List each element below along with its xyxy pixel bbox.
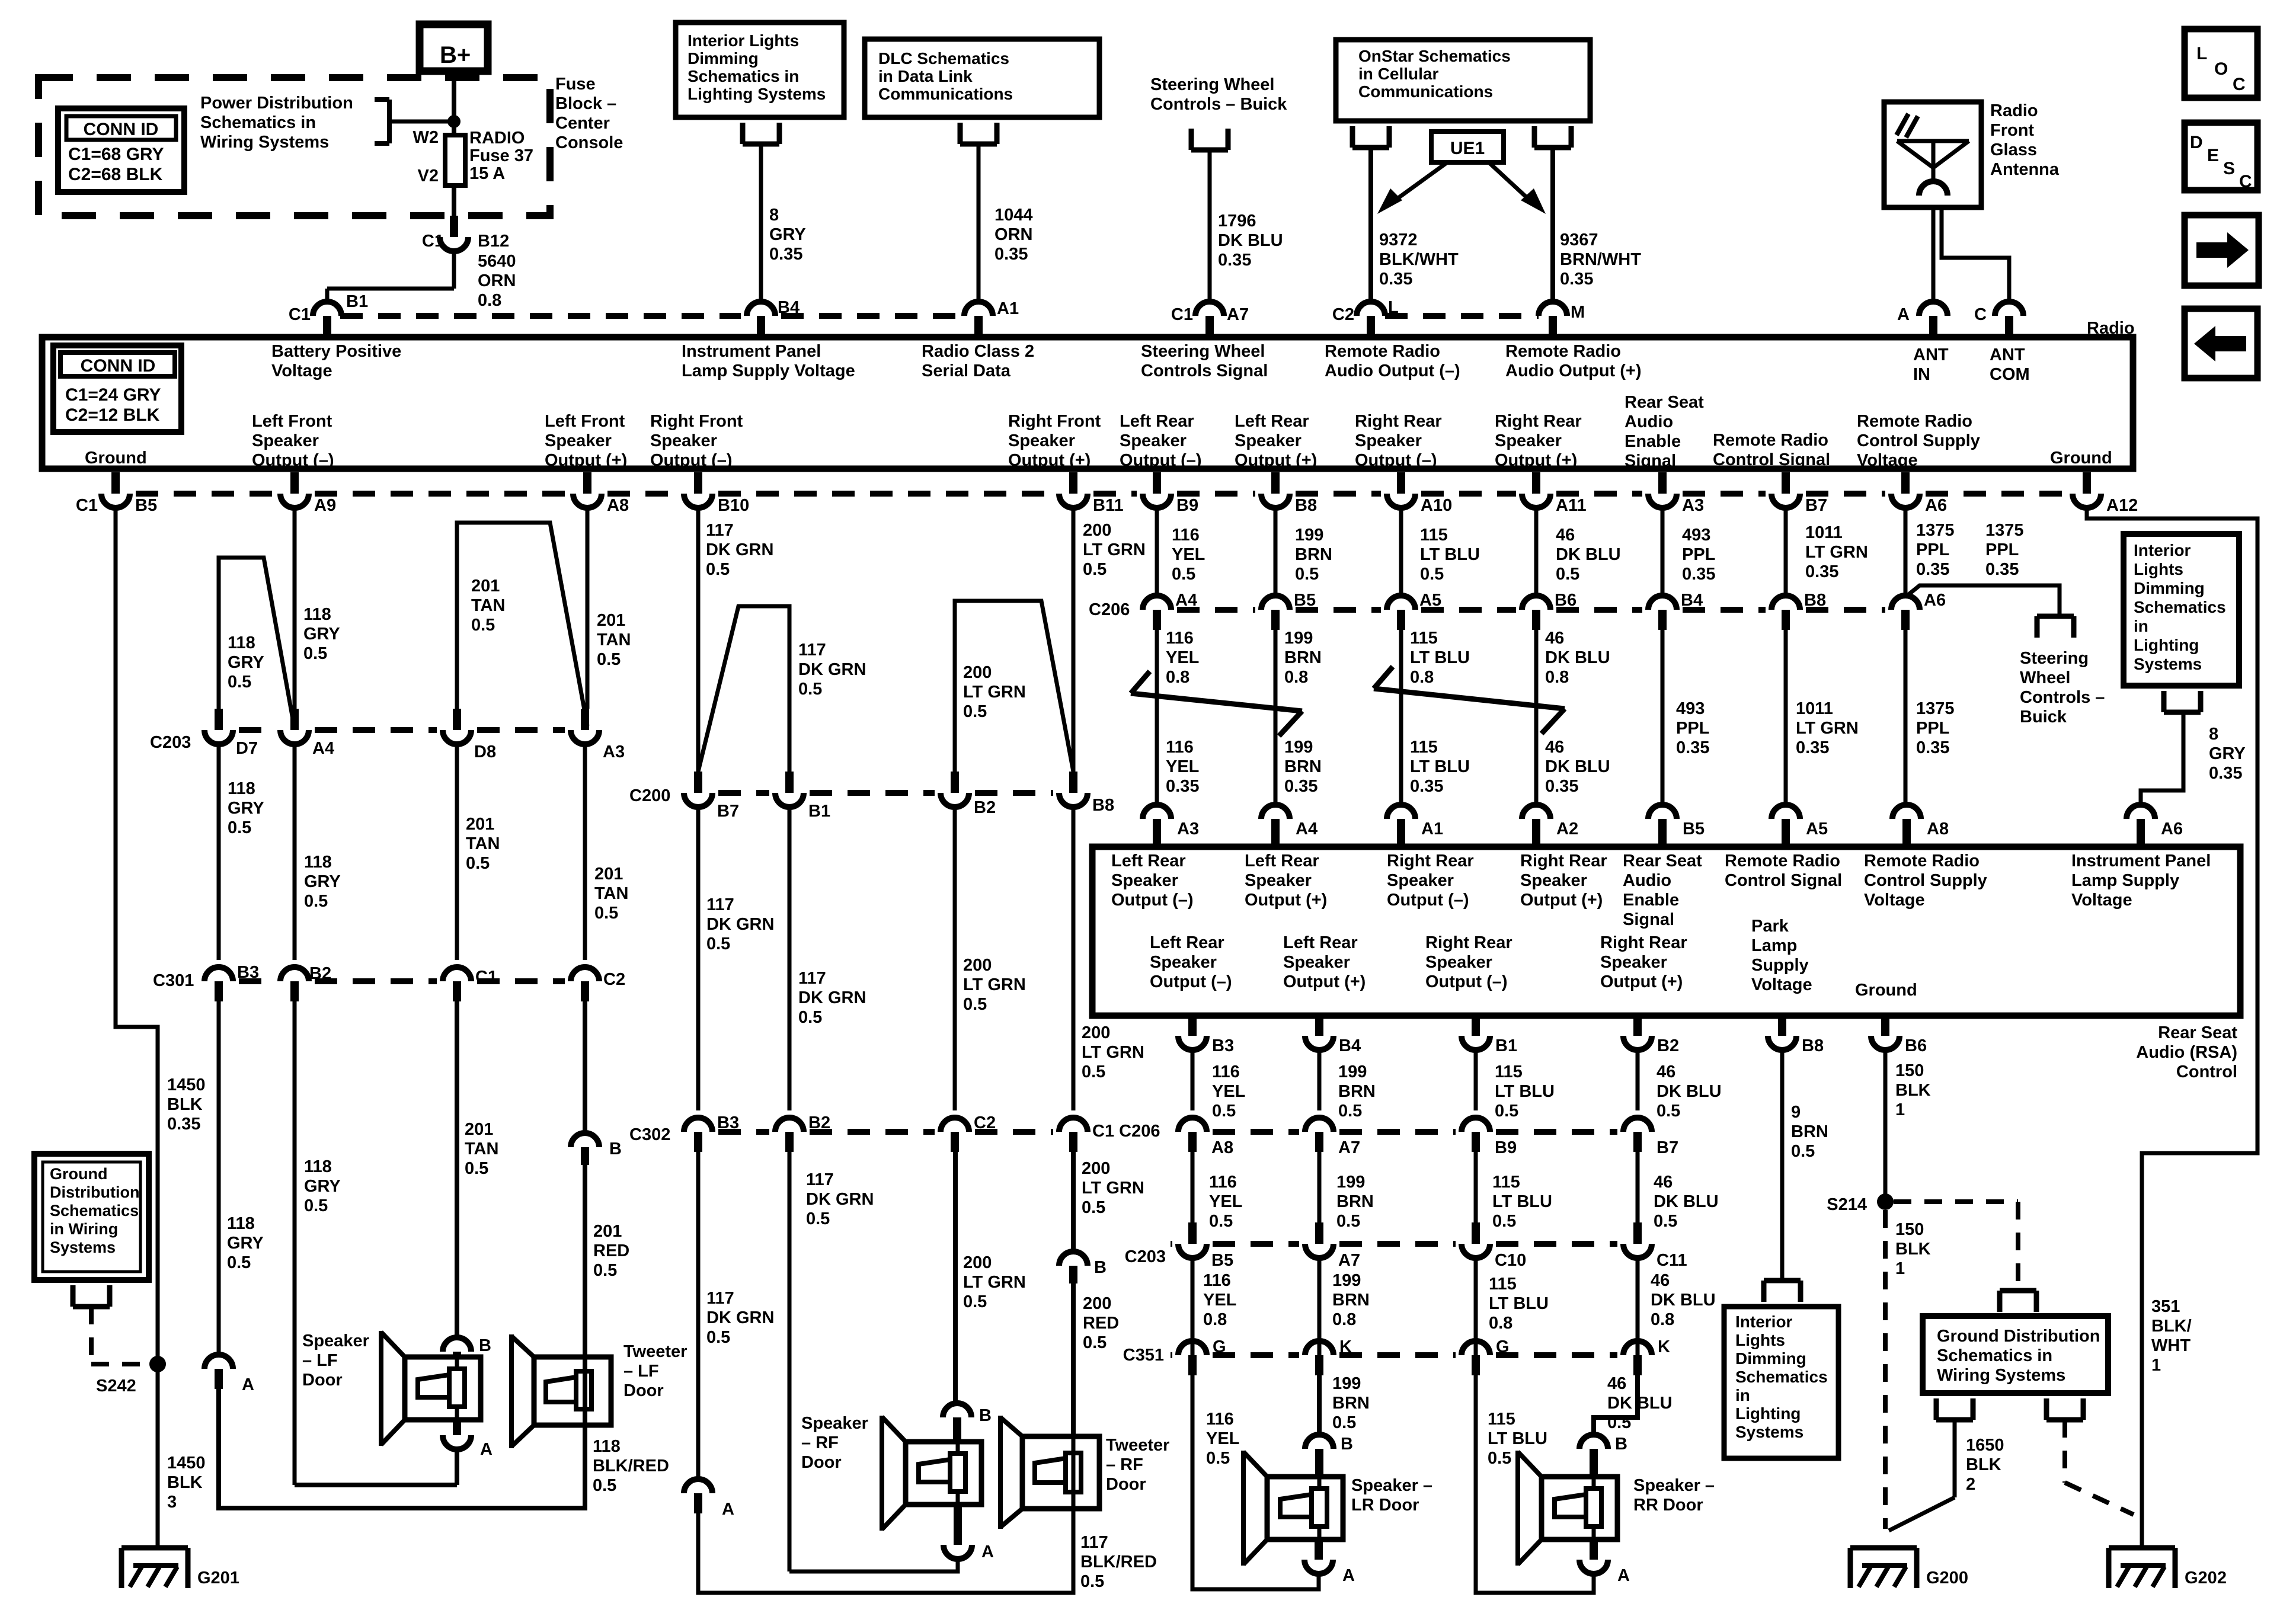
svg-text:1044: 1044 [994, 206, 1033, 225]
svg-text:PPL: PPL [1676, 719, 1709, 738]
svg-text:0.5: 0.5 [594, 904, 618, 923]
svg-text:BRN: BRN [1791, 1122, 1828, 1141]
svg-text:0.35: 0.35 [1796, 738, 1829, 757]
svg-text:B4: B4 [1339, 1036, 1361, 1055]
svg-text:0.5: 0.5 [304, 1196, 328, 1215]
svg-text:ANT: ANT [1990, 345, 2025, 364]
svg-text:RR Door: RR Door [1633, 1496, 1703, 1515]
svg-text:0.35: 0.35 [1916, 738, 1949, 757]
svg-text:– LF: – LF [302, 1351, 338, 1370]
svg-text:0.35: 0.35 [769, 245, 802, 264]
svg-text:C203: C203 [1125, 1247, 1166, 1266]
svg-text:LT GRN: LT GRN [1082, 1179, 1144, 1198]
svg-text:B6: B6 [1555, 591, 1576, 610]
svg-text:C: C [2239, 172, 2252, 191]
svg-text:A: A [480, 1440, 493, 1459]
svg-text:DK BLU: DK BLU [1545, 648, 1610, 667]
svg-text:Block –: Block – [555, 94, 616, 113]
svg-text:BLK: BLK [167, 1095, 203, 1114]
svg-text:B5: B5 [1211, 1251, 1233, 1270]
svg-text:BLK/RED: BLK/RED [1080, 1553, 1157, 1571]
svg-text:Speaker: Speaker [801, 1414, 868, 1433]
svg-text:0.35: 0.35 [1284, 777, 1318, 796]
svg-text:0.5: 0.5 [1332, 1413, 1356, 1432]
svg-text:Voltage: Voltage [1864, 891, 1925, 910]
svg-text:Tweeter: Tweeter [1106, 1436, 1169, 1455]
svg-text:Output (–): Output (–) [1355, 451, 1437, 470]
svg-text:B1: B1 [1495, 1036, 1517, 1055]
svg-text:Buick: Buick [2020, 708, 2067, 726]
svg-text:46: 46 [1545, 738, 1564, 757]
svg-text:117: 117 [706, 895, 734, 914]
svg-text:Tweeter: Tweeter [623, 1342, 687, 1361]
svg-text:C1: C1 [1171, 305, 1193, 324]
svg-text:117: 117 [1080, 1533, 1108, 1552]
svg-text:Right Rear: Right Rear [1387, 852, 1474, 870]
svg-text:201: 201 [465, 1120, 493, 1139]
svg-text:46: 46 [1657, 1062, 1675, 1081]
svg-text:0.8: 0.8 [478, 291, 501, 310]
svg-text:Instrument Panel: Instrument Panel [682, 342, 821, 361]
svg-text:YEL: YEL [1166, 757, 1199, 776]
svg-text:C2=68 BLK: C2=68 BLK [68, 165, 163, 184]
svg-text:B10: B10 [718, 496, 749, 515]
svg-text:B: B [1615, 1435, 1627, 1454]
svg-text:DK BLU: DK BLU [1651, 1291, 1716, 1310]
svg-text:0.5: 0.5 [963, 995, 987, 1014]
svg-text:Speaker: Speaker [1283, 953, 1350, 972]
svg-text:Speaker: Speaker [302, 1331, 369, 1350]
svg-text:117: 117 [798, 641, 826, 660]
svg-text:Door: Door [801, 1453, 842, 1472]
svg-text:IN: IN [1913, 365, 1930, 384]
svg-text:C1: C1 [76, 496, 98, 515]
svg-text:Door: Door [302, 1371, 343, 1390]
svg-text:B3: B3 [237, 963, 259, 982]
svg-text:Door: Door [623, 1381, 664, 1400]
svg-text:A3: A3 [1682, 496, 1704, 515]
svg-text:WHT: WHT [2151, 1336, 2191, 1355]
svg-text:0.5: 0.5 [593, 1261, 617, 1280]
svg-text:Center: Center [555, 114, 610, 133]
svg-text:Remote Radio: Remote Radio [1725, 852, 1840, 870]
svg-text:0.5: 0.5 [1206, 1449, 1230, 1468]
svg-text:0.5: 0.5 [1791, 1142, 1815, 1161]
svg-text:A8: A8 [1927, 820, 1949, 838]
svg-text:B: B [1341, 1435, 1353, 1454]
svg-text:A4: A4 [312, 739, 334, 758]
svg-text:B: B [479, 1336, 491, 1355]
svg-text:0.5: 0.5 [1083, 1333, 1107, 1352]
svg-text:Lamp Supply Voltage: Lamp Supply Voltage [682, 361, 855, 380]
svg-text:0.35: 0.35 [1410, 777, 1443, 796]
svg-text:0.35: 0.35 [1218, 251, 1251, 270]
svg-text:201: 201 [597, 611, 625, 630]
svg-text:46: 46 [1556, 526, 1575, 545]
svg-text:0.35: 0.35 [1379, 270, 1412, 289]
svg-text:0.35: 0.35 [167, 1115, 200, 1134]
svg-text:Speaker: Speaker [1235, 431, 1302, 450]
svg-text:YEL: YEL [1206, 1429, 1239, 1448]
svg-text:118: 118 [227, 1214, 255, 1233]
svg-text:Output (+): Output (+) [1235, 451, 1317, 470]
svg-text:0.5: 0.5 [798, 1008, 822, 1027]
svg-text:Supply: Supply [1751, 956, 1809, 975]
svg-text:A: A [1342, 1566, 1355, 1585]
svg-text:0.5: 0.5 [706, 934, 730, 953]
svg-text:B8: B8 [1802, 1036, 1824, 1055]
svg-text:BRN: BRN [1295, 545, 1332, 564]
svg-text:0.5: 0.5 [597, 650, 621, 669]
svg-text:Audio Output (–): Audio Output (–) [1325, 361, 1460, 380]
svg-text:GRY: GRY [228, 799, 264, 818]
svg-text:DK GRN: DK GRN [798, 988, 866, 1007]
svg-text:Voltage: Voltage [1857, 451, 1918, 470]
svg-text:LT GRN: LT GRN [1805, 543, 1868, 562]
svg-text:Audio: Audio [1623, 871, 1671, 890]
svg-text:GRY: GRY [303, 625, 340, 644]
svg-text:Ground: Ground [1855, 981, 1917, 1000]
svg-text:LT BLU: LT BLU [1488, 1429, 1547, 1448]
svg-text:1011: 1011 [1805, 523, 1843, 542]
svg-text:A: A [1617, 1566, 1630, 1585]
svg-text:9367: 9367 [1560, 231, 1598, 249]
svg-text:Speaker: Speaker [1600, 953, 1667, 972]
svg-text:Remote Radio: Remote Radio [1713, 431, 1828, 450]
svg-text:B9: B9 [1495, 1138, 1517, 1157]
svg-text:BLK: BLK [167, 1473, 203, 1492]
svg-text:B2: B2 [309, 964, 331, 983]
svg-text:Output (+): Output (+) [1008, 451, 1091, 470]
svg-text:Right Rear: Right Rear [1495, 412, 1582, 431]
svg-text:Left Rear: Left Rear [1235, 412, 1309, 431]
svg-text:116: 116 [1212, 1062, 1240, 1081]
svg-text:0.5: 0.5 [1657, 1102, 1680, 1121]
svg-text:Speaker: Speaker [252, 431, 319, 450]
svg-text:115: 115 [1420, 526, 1448, 545]
svg-text:116: 116 [1206, 1410, 1234, 1429]
svg-text:0.5: 0.5 [1080, 1572, 1104, 1591]
svg-text:in Wiring: in Wiring [50, 1220, 118, 1238]
svg-text:OnStar Schematics: OnStar Schematics [1358, 47, 1511, 65]
svg-text:C2=12 BLK: C2=12 BLK [65, 405, 160, 425]
svg-text:YEL: YEL [1209, 1192, 1242, 1211]
svg-text:YEL: YEL [1212, 1082, 1245, 1101]
svg-text:1: 1 [1895, 1100, 1905, 1119]
svg-text:117: 117 [798, 969, 826, 988]
svg-text:B8: B8 [1092, 796, 1114, 815]
svg-text:S242: S242 [96, 1377, 136, 1395]
svg-text:0.5: 0.5 [798, 680, 822, 699]
svg-text:Steering Wheel: Steering Wheel [1141, 342, 1265, 361]
svg-text:in: in [2134, 617, 2148, 635]
svg-text:D8: D8 [474, 742, 496, 761]
svg-text:Schematics in: Schematics in [687, 67, 799, 85]
svg-text:BRN/WHT: BRN/WHT [1560, 250, 1641, 269]
svg-text:Controls –: Controls – [2020, 688, 2105, 707]
svg-text:351: 351 [2151, 1297, 2180, 1316]
svg-text:0.5: 0.5 [465, 1159, 488, 1178]
svg-text:A11: A11 [1556, 496, 1587, 515]
svg-text:B: B [609, 1140, 622, 1158]
svg-text:115: 115 [1495, 1062, 1523, 1081]
svg-text:B11: B11 [1093, 496, 1124, 515]
svg-text:0.5: 0.5 [1172, 565, 1195, 584]
svg-text:C2: C2 [974, 1113, 996, 1132]
svg-text:200: 200 [1082, 1159, 1110, 1178]
svg-text:Dimming: Dimming [2134, 579, 2205, 597]
svg-text:0.8: 0.8 [1651, 1310, 1674, 1329]
svg-text:YEL: YEL [1166, 648, 1199, 667]
svg-text:TAN: TAN [471, 596, 505, 615]
svg-text:B7: B7 [1657, 1138, 1678, 1157]
svg-text:B+: B+ [440, 42, 471, 68]
svg-text:GRY: GRY [304, 1177, 341, 1196]
svg-text:LT BLU: LT BLU [1410, 757, 1470, 776]
svg-text:DK GRN: DK GRN [706, 1308, 774, 1327]
svg-text:B4: B4 [1681, 591, 1703, 610]
svg-text:15 A: 15 A [469, 164, 505, 183]
svg-text:Remote Radio: Remote Radio [1325, 342, 1440, 361]
svg-text:B1: B1 [808, 802, 830, 821]
svg-text:E: E [2207, 146, 2219, 165]
svg-text:BLK/RED: BLK/RED [593, 1457, 669, 1475]
svg-text:DK GRN: DK GRN [798, 660, 866, 679]
svg-text:Remote Radio: Remote Radio [1864, 852, 1980, 870]
svg-text:C1=24 GRY: C1=24 GRY [65, 385, 161, 405]
svg-text:Schematics: Schematics [1735, 1368, 1828, 1386]
svg-text:BRN: BRN [1284, 757, 1322, 776]
svg-text:A3: A3 [603, 742, 625, 761]
svg-text:BRN: BRN [1336, 1192, 1374, 1211]
svg-text:Speaker: Speaker [1355, 431, 1422, 450]
svg-text:Output (+): Output (+) [1495, 451, 1577, 470]
svg-text:0.5: 0.5 [471, 616, 495, 635]
svg-text:118: 118 [304, 1157, 332, 1176]
svg-text:V2: V2 [418, 167, 439, 185]
svg-text:Output (+): Output (+) [1600, 972, 1683, 991]
svg-text:A8: A8 [607, 496, 629, 515]
svg-text:118: 118 [593, 1437, 621, 1456]
svg-text:0.35: 0.35 [1985, 560, 2019, 579]
svg-text:A7: A7 [1338, 1138, 1360, 1157]
svg-text:in: in [1735, 1386, 1750, 1404]
svg-text:0.35: 0.35 [1805, 562, 1838, 581]
svg-text:YEL: YEL [1172, 545, 1205, 564]
svg-text:BLK: BLK [1895, 1081, 1931, 1100]
svg-text:Wiring Systems: Wiring Systems [200, 133, 329, 152]
svg-text:Right Rear: Right Rear [1425, 933, 1512, 952]
svg-text:– RF: – RF [801, 1433, 839, 1452]
svg-text:116: 116 [1166, 629, 1194, 648]
svg-text:O: O [2214, 59, 2228, 79]
svg-text:C206: C206 [1089, 600, 1130, 619]
svg-text:150: 150 [1895, 1220, 1924, 1239]
svg-text:DK BLU: DK BLU [1654, 1192, 1719, 1211]
svg-text:Speaker: Speaker [1150, 953, 1217, 972]
svg-text:1650: 1650 [1966, 1436, 2004, 1455]
svg-text:DK BLU: DK BLU [1545, 757, 1610, 776]
svg-text:A: A [981, 1542, 994, 1561]
svg-text:Interior Lights: Interior Lights [687, 31, 799, 50]
svg-text:B6: B6 [1905, 1036, 1927, 1055]
svg-text:0.5: 0.5 [303, 644, 327, 663]
svg-text:B: B [1094, 1258, 1107, 1277]
svg-text:0.5: 0.5 [806, 1209, 830, 1228]
svg-text:B5: B5 [135, 496, 157, 515]
svg-text:B9: B9 [1176, 496, 1198, 515]
svg-text:118: 118 [228, 633, 255, 652]
svg-text:D: D [2190, 133, 2203, 152]
svg-text:Ground Distribution: Ground Distribution [1937, 1327, 2100, 1346]
svg-text:115: 115 [1492, 1173, 1520, 1192]
svg-text:BRN: BRN [1332, 1291, 1370, 1310]
svg-text:Output (–): Output (–) [1120, 451, 1202, 470]
svg-text:0.8: 0.8 [1284, 668, 1308, 687]
svg-text:Interior: Interior [2134, 541, 2191, 559]
svg-text:1375: 1375 [1985, 521, 2024, 540]
svg-text:in Cellular: in Cellular [1358, 65, 1438, 83]
svg-text:B: B [979, 1406, 992, 1425]
svg-text:M: M [1571, 303, 1585, 322]
svg-text:Left Rear: Left Rear [1120, 412, 1194, 431]
svg-text:115: 115 [1410, 738, 1438, 757]
svg-text:B3: B3 [1212, 1036, 1234, 1055]
svg-text:Lamp: Lamp [1751, 936, 1797, 955]
svg-text:B8: B8 [1804, 591, 1826, 610]
svg-text:UE1: UE1 [1450, 139, 1485, 158]
svg-text:A5: A5 [1806, 820, 1828, 838]
svg-text:199: 199 [1295, 526, 1323, 545]
svg-text:A7: A7 [1338, 1251, 1360, 1270]
svg-text:199: 199 [1338, 1062, 1367, 1081]
svg-text:201: 201 [593, 1222, 622, 1241]
svg-text:0.8: 0.8 [1203, 1310, 1227, 1329]
svg-text:C302: C302 [629, 1125, 670, 1144]
svg-text:0.5: 0.5 [1082, 1198, 1105, 1217]
svg-text:Speaker: Speaker [1245, 871, 1312, 890]
svg-text:C11: C11 [1657, 1251, 1687, 1270]
svg-text:0.8: 0.8 [1489, 1314, 1512, 1333]
svg-text:0.5: 0.5 [1212, 1102, 1236, 1121]
svg-text:A9: A9 [314, 496, 336, 515]
svg-text:C: C [1974, 305, 1987, 324]
svg-text:0.35: 0.35 [1560, 270, 1593, 289]
svg-text:Systems: Systems [1735, 1423, 1803, 1441]
svg-text:150: 150 [1895, 1061, 1924, 1080]
svg-text:PPL: PPL [1682, 545, 1715, 564]
svg-text:0.5: 0.5 [1654, 1212, 1677, 1231]
svg-text:Communications: Communications [1358, 82, 1493, 101]
svg-text:A: A [722, 1500, 734, 1519]
svg-text:CONN ID: CONN ID [84, 120, 159, 139]
svg-text:Remote Radio: Remote Radio [1857, 412, 1972, 431]
svg-text:46: 46 [1545, 629, 1564, 648]
svg-text:Controls – Buick: Controls – Buick [1150, 95, 1287, 114]
svg-text:Signal: Signal [1625, 452, 1676, 470]
svg-text:0.5: 0.5 [1338, 1102, 1362, 1121]
svg-text:BRN: BRN [1338, 1082, 1376, 1101]
svg-text:DK GRN: DK GRN [806, 1190, 874, 1209]
svg-text:Lighting: Lighting [1735, 1404, 1801, 1423]
svg-text:Battery Positive: Battery Positive [271, 342, 401, 361]
svg-text:LT BLU: LT BLU [1410, 648, 1470, 667]
svg-text:C1: C1 [289, 305, 311, 324]
svg-text:BLK/: BLK/ [2151, 1317, 2192, 1336]
svg-text:L: L [2196, 44, 2207, 63]
svg-text:DK GRN: DK GRN [706, 915, 774, 934]
svg-text:LT BLU: LT BLU [1420, 545, 1480, 564]
svg-text:PPL: PPL [1916, 540, 1949, 559]
svg-text:B12: B12 [478, 232, 509, 251]
svg-text:Speaker: Speaker [545, 431, 612, 450]
svg-text:W2: W2 [413, 128, 439, 147]
svg-text:Rear Seat: Rear Seat [1625, 393, 1704, 412]
svg-text:C1 C206: C1 C206 [1092, 1122, 1160, 1141]
svg-text:Interior: Interior [1735, 1313, 1793, 1331]
svg-text:200: 200 [1082, 1023, 1110, 1042]
svg-text:PPL: PPL [1985, 540, 2019, 559]
svg-text:Left Front: Left Front [252, 412, 332, 431]
svg-text:C2: C2 [1332, 305, 1354, 324]
svg-text:B8: B8 [1295, 496, 1317, 515]
svg-text:Power Distribution: Power Distribution [200, 94, 353, 113]
svg-text:46: 46 [1651, 1271, 1670, 1290]
svg-text:LT BLU: LT BLU [1492, 1192, 1552, 1211]
svg-text:Schematics in: Schematics in [1937, 1346, 2052, 1365]
svg-text:A5: A5 [1419, 591, 1441, 610]
svg-text:115: 115 [1410, 629, 1438, 648]
svg-text:G202: G202 [2185, 1569, 2227, 1587]
svg-text:Dimming: Dimming [687, 49, 759, 68]
svg-text:B5: B5 [1683, 820, 1705, 838]
svg-text:Fuse: Fuse [555, 75, 596, 94]
svg-text:BRN: BRN [1284, 648, 1322, 667]
svg-text:Output (+): Output (+) [1245, 891, 1327, 910]
svg-text:A6: A6 [1924, 591, 1946, 610]
svg-text:A8: A8 [1211, 1138, 1233, 1157]
svg-text:1: 1 [1895, 1259, 1905, 1278]
svg-text:115: 115 [1489, 1275, 1517, 1294]
svg-text:Rear Seat: Rear Seat [1623, 852, 1702, 870]
svg-text:C2: C2 [603, 970, 625, 989]
svg-text:Lighting: Lighting [2134, 636, 2199, 654]
svg-text:GRY: GRY [227, 1234, 264, 1253]
svg-text:CONN ID: CONN ID [81, 356, 156, 376]
svg-text:Audio (RSA): Audio (RSA) [2136, 1043, 2237, 1062]
svg-text:DK GRN: DK GRN [706, 540, 773, 559]
svg-text:Speaker: Speaker [1425, 953, 1492, 972]
svg-text:A4: A4 [1175, 591, 1197, 610]
svg-text:S: S [2223, 159, 2235, 178]
svg-text:Lights: Lights [1735, 1331, 1785, 1349]
svg-text:C301: C301 [153, 971, 194, 990]
svg-text:0.5: 0.5 [593, 1476, 616, 1495]
svg-text:Right Rear: Right Rear [1520, 852, 1607, 870]
svg-text:Speaker: Speaker [1111, 871, 1178, 890]
svg-text:GRY: GRY [2209, 744, 2246, 763]
svg-text:C203: C203 [150, 733, 191, 752]
svg-text:1375: 1375 [1916, 699, 1955, 718]
svg-text:1450: 1450 [167, 1076, 206, 1094]
svg-text:0.5: 0.5 [1556, 565, 1579, 584]
svg-text:Control Supply: Control Supply [1864, 871, 1987, 890]
svg-text:0.8: 0.8 [1332, 1310, 1356, 1329]
svg-text:Voltage: Voltage [271, 361, 332, 380]
svg-text:0.5: 0.5 [1295, 565, 1319, 584]
svg-text:A4: A4 [1296, 820, 1318, 838]
svg-text:LT GRN: LT GRN [963, 1273, 1026, 1292]
